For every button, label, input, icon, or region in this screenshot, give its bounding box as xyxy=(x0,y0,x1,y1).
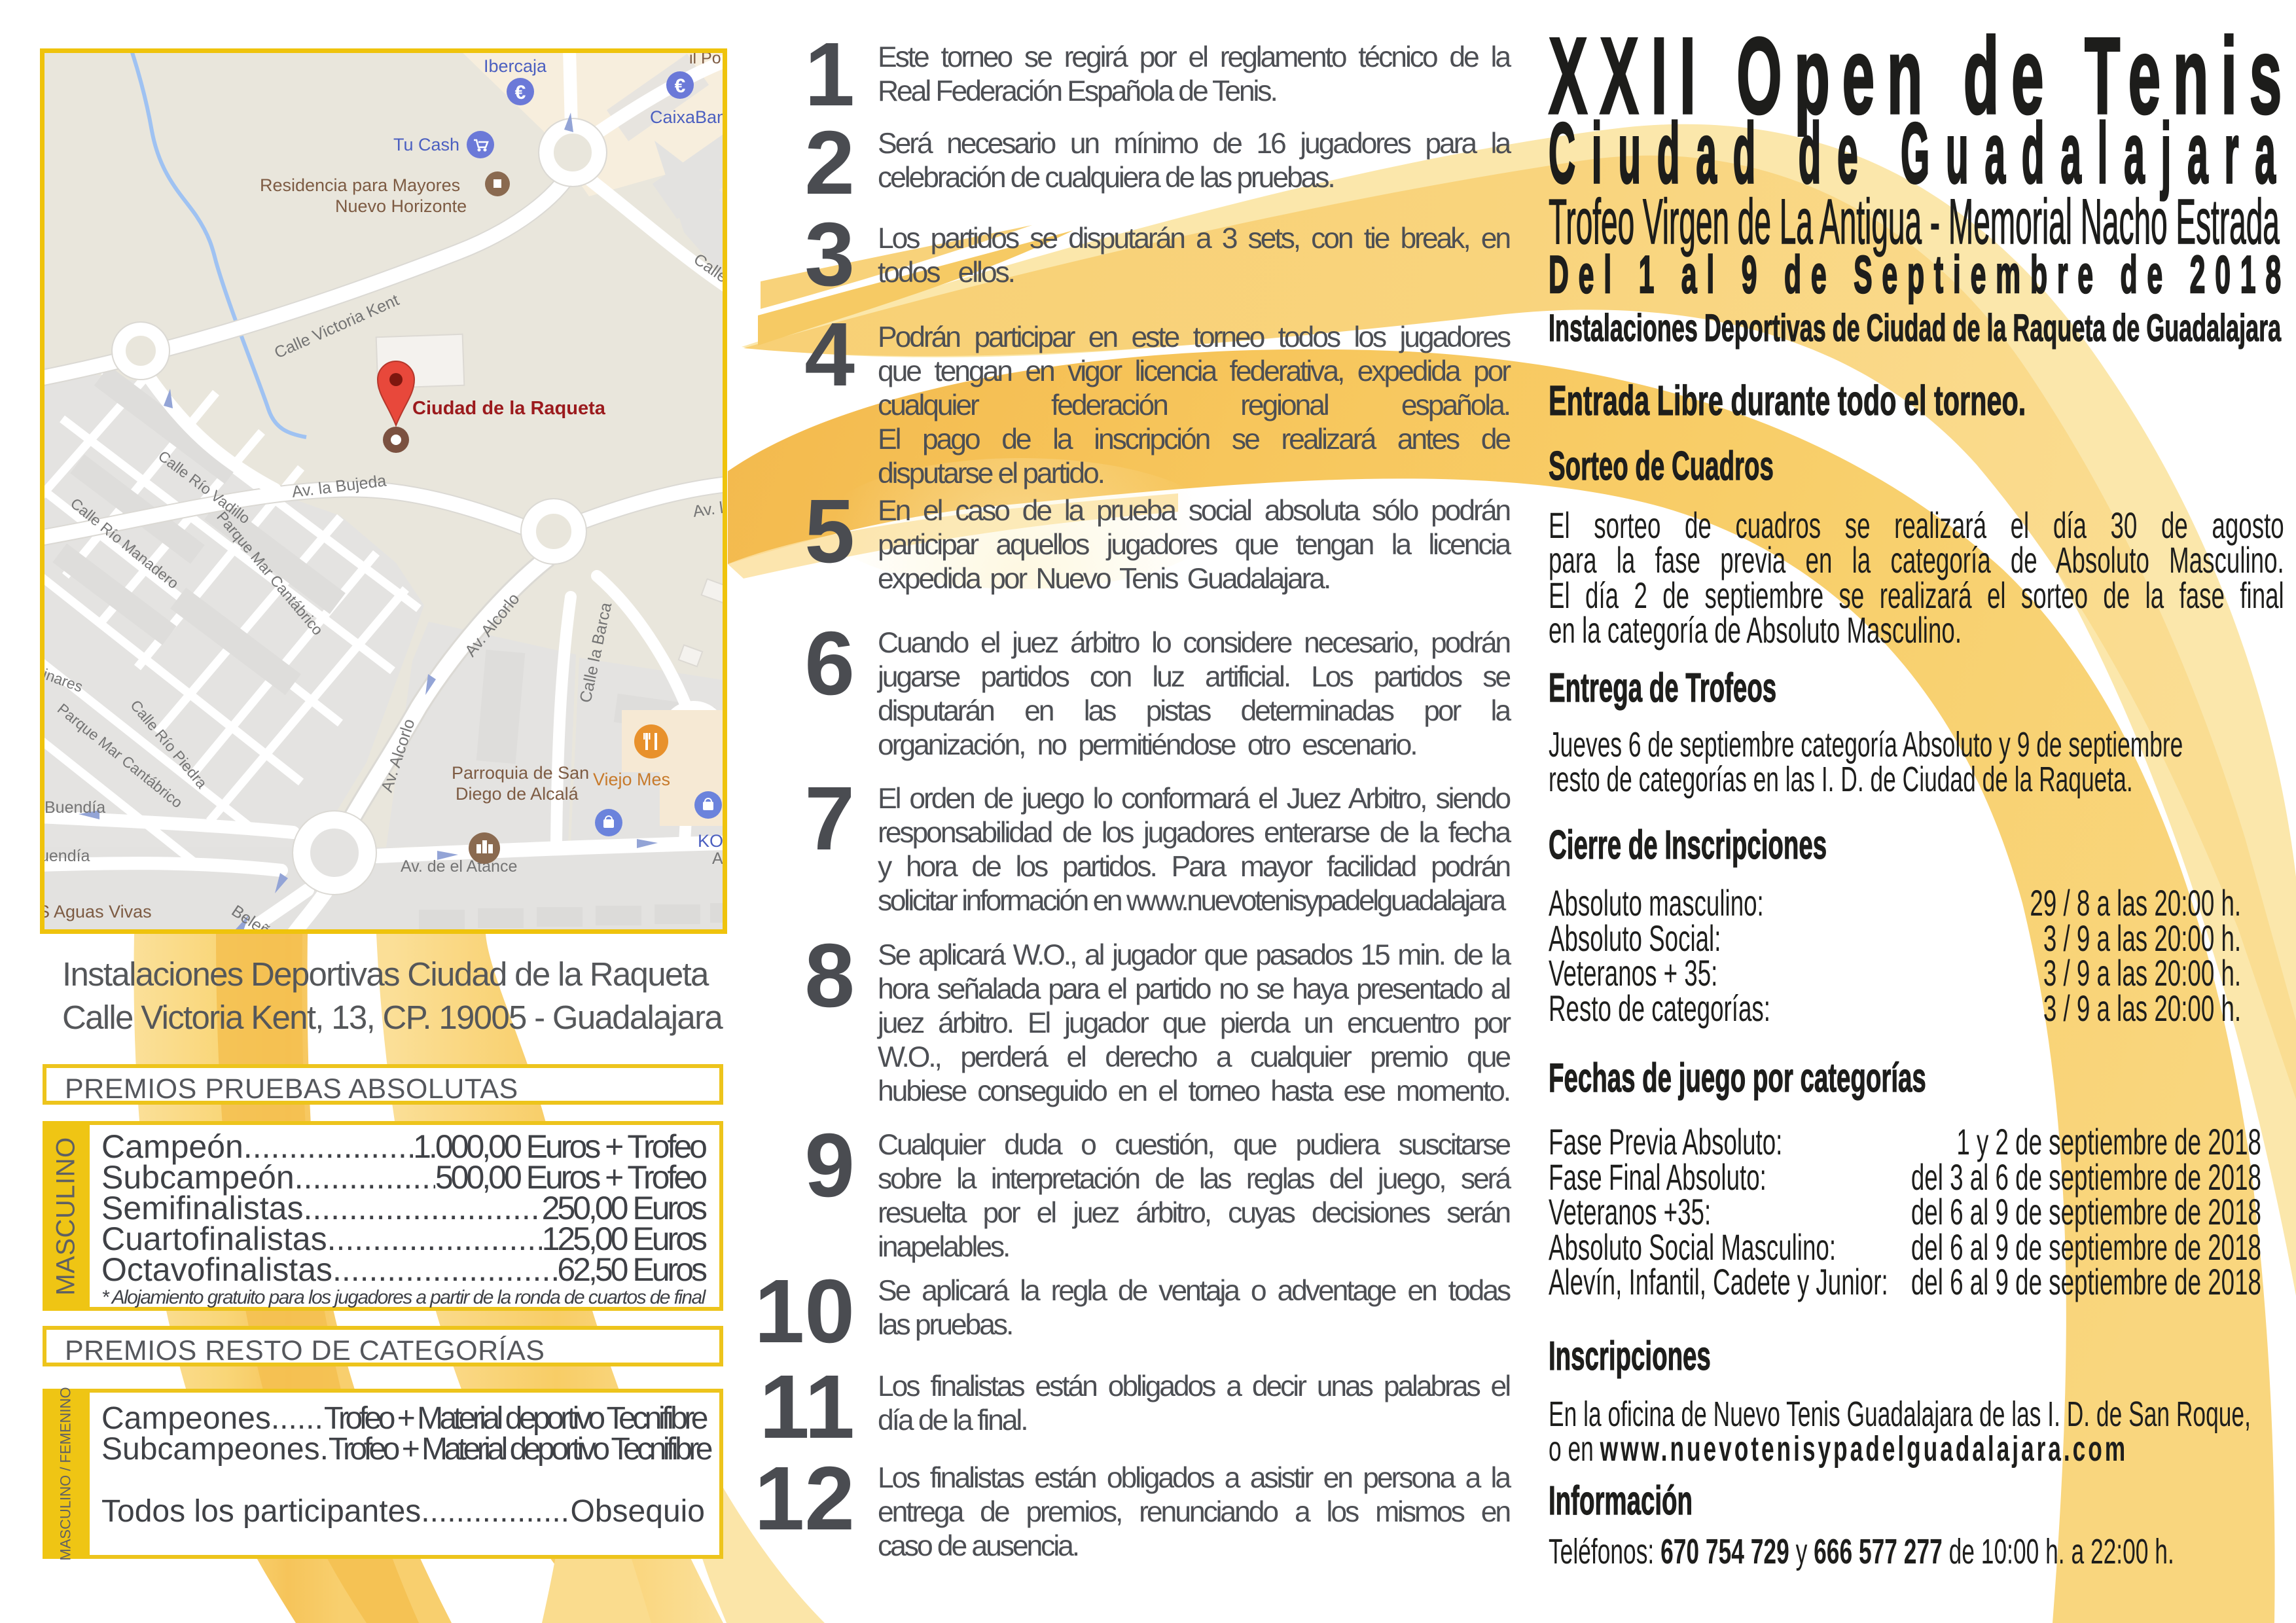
svg-text:Nuevo Horizonte: Nuevo Horizonte xyxy=(335,196,467,216)
svg-text:Buendía: Buendía xyxy=(45,798,105,817)
svg-text:Ibercaja: Ibercaja xyxy=(484,56,547,76)
svg-text:Residencia para Mayores: Residencia para Mayores xyxy=(260,175,460,195)
svg-text:€: € xyxy=(675,75,686,97)
svg-text:Ciudad de la Raqueta: Ciudad de la Raqueta xyxy=(412,398,606,419)
svg-text:Viejo Mes: Viejo Mes xyxy=(593,770,670,789)
svg-text:Parroquia de San: Parroquia de San xyxy=(452,763,589,783)
svg-text:uendía: uendía xyxy=(40,847,90,865)
svg-text:S Aguas Vivas: S Aguas Vivas xyxy=(40,902,152,921)
svg-text:€: € xyxy=(515,82,526,103)
svg-text:Tu Cash: Tu Cash xyxy=(393,135,459,154)
svg-text:Diego de Alcalá: Diego de Alcalá xyxy=(456,784,579,804)
svg-text:Av. de el Atance: Av. de el Atance xyxy=(401,857,517,876)
